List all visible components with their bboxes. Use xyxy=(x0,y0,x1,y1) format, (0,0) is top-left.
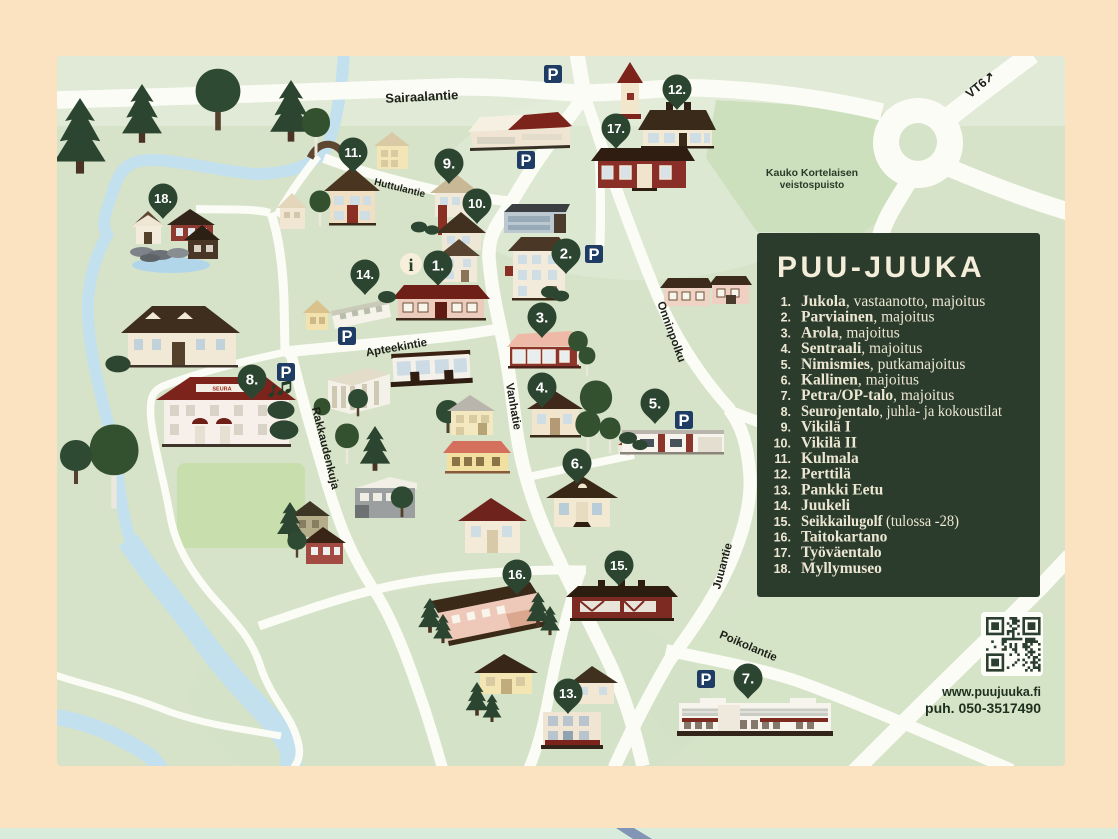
svg-text:1.: 1. xyxy=(781,295,791,309)
svg-text:Parviainen, majoitus: Parviainen, majoitus xyxy=(801,309,934,326)
svg-text:13.: 13. xyxy=(559,686,577,701)
svg-text:Vikilä I: Vikilä I xyxy=(801,419,851,436)
svg-text:11.: 11. xyxy=(774,452,791,466)
svg-text:6.: 6. xyxy=(781,374,791,388)
svg-text:veistospuisto: veistospuisto xyxy=(780,180,844,191)
svg-text:15.: 15. xyxy=(774,515,791,529)
svg-text:Petra/OP-talo, majoitus: Petra/OP-talo, majoitus xyxy=(801,387,954,404)
svg-text:Seurojentalo, juhla- ja kokous: Seurojentalo, juhla- ja kokoustilat xyxy=(801,403,1003,420)
svg-text:Nimismies, putkamajoitus: Nimismies, putkamajoitus xyxy=(801,356,965,373)
svg-text:11.: 11. xyxy=(344,145,361,160)
svg-text:5.: 5. xyxy=(781,358,791,372)
svg-text:Työväentalo: Työväentalo xyxy=(801,544,882,561)
svg-text:2.: 2. xyxy=(781,311,791,325)
svg-text:Perttilä: Perttilä xyxy=(801,466,851,483)
svg-text:12.: 12. xyxy=(774,468,791,482)
svg-text:9.: 9. xyxy=(443,156,456,173)
svg-text:18.: 18. xyxy=(774,562,791,576)
svg-text:16.: 16. xyxy=(774,531,791,545)
svg-text:3.: 3. xyxy=(536,310,549,327)
svg-text:17.: 17. xyxy=(774,546,791,560)
svg-text:Kulmala: Kulmala xyxy=(801,450,859,467)
svg-text:9.: 9. xyxy=(781,421,791,435)
svg-text:Seikkailugolf (tulossa -28): Seikkailugolf (tulossa -28) xyxy=(801,513,959,530)
svg-text:Myllymuseo: Myllymuseo xyxy=(801,560,882,577)
svg-text:6.: 6. xyxy=(571,456,584,473)
svg-text:7.: 7. xyxy=(742,671,755,688)
svg-text:16.: 16. xyxy=(508,567,526,582)
svg-text:10.: 10. xyxy=(468,196,486,211)
svg-text:8.: 8. xyxy=(781,405,791,419)
svg-text:8.: 8. xyxy=(246,372,259,389)
svg-text:4.: 4. xyxy=(781,342,791,356)
svg-text:Sentraali, majoitus: Sentraali, majoitus xyxy=(801,340,922,357)
svg-text:10.: 10. xyxy=(774,436,791,450)
svg-text:Kallinen, majoitus: Kallinen, majoitus xyxy=(801,372,919,389)
svg-text:Vikilä II: Vikilä II xyxy=(801,434,857,451)
svg-text:14.: 14. xyxy=(774,499,791,513)
svg-text:12.: 12. xyxy=(668,82,686,97)
svg-text:puh. 050-3517490: puh. 050-3517490 xyxy=(925,700,1041,716)
svg-text:Juukeli: Juukeli xyxy=(801,497,851,514)
svg-text:Taitokartano: Taitokartano xyxy=(801,529,888,546)
svg-text:13.: 13. xyxy=(774,483,791,497)
svg-text:17.: 17. xyxy=(607,121,625,136)
svg-text:SEURA: SEURA xyxy=(212,387,231,393)
svg-text:15.: 15. xyxy=(610,558,628,573)
svg-text:3.: 3. xyxy=(781,326,791,340)
svg-text:14.: 14. xyxy=(356,267,374,282)
svg-text:1.: 1. xyxy=(432,258,445,275)
svg-text:Kauko Kortelaisen: Kauko Kortelaisen xyxy=(766,167,858,179)
svg-text:2.: 2. xyxy=(560,246,573,263)
svg-text:Arola, majoitus: Arola, majoitus xyxy=(801,324,900,341)
svg-text:5.: 5. xyxy=(649,396,662,413)
svg-text:18.: 18. xyxy=(154,191,172,206)
svg-text:www.puujuuka.fi: www.puujuuka.fi xyxy=(941,685,1041,699)
svg-text:i: i xyxy=(408,255,413,275)
svg-text:PUU-JUUKA: PUU-JUUKA xyxy=(777,251,985,284)
svg-text:7.: 7. xyxy=(781,389,791,403)
svg-text:Jukola, vastaanotto, majoitus: Jukola, vastaanotto, majoitus xyxy=(801,293,985,310)
svg-text:Pankki Eetu: Pankki Eetu xyxy=(801,481,884,498)
svg-text:4.: 4. xyxy=(536,380,549,397)
